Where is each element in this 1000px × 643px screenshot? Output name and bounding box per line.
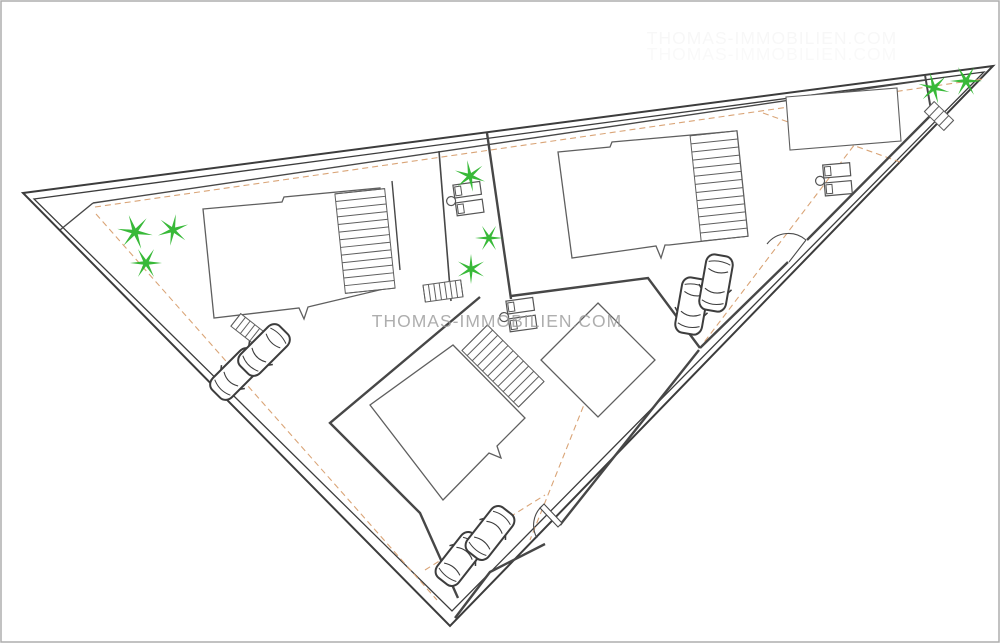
tree-icon [475, 226, 503, 250]
tree-icon [919, 73, 950, 104]
setback-lines [95, 79, 983, 600]
tree-icon [158, 214, 188, 246]
stair-hatch-band [335, 189, 395, 294]
watermark: THOMAS-IMMOBILIEN.COM [372, 311, 622, 331]
stair-hatch-band [423, 280, 463, 302]
site-plan-drawing: THOMAS-IMMOBILIEN.COM THOMAS-IMMOBILIEN.… [0, 0, 1000, 643]
buildings [203, 88, 901, 500]
watermark-text: THOMAS-IMMOBILIEN.COM [372, 311, 622, 331]
tree-icon [130, 249, 162, 277]
sunbeds-group [444, 181, 483, 217]
tree-icon [117, 215, 152, 249]
watermark-echoes: THOMAS-IMMOBILIEN.COMTHOMAS-IMMOBILIEN.C… [647, 28, 897, 64]
pool-outline [786, 88, 901, 150]
site-plan-screenshot: THOMAS-IMMOBILIEN.COM THOMAS-IMMOBILIEN.… [0, 0, 1000, 643]
parcel-divider-wall-west [487, 133, 511, 299]
gate-leaf-south [540, 504, 562, 527]
watermark-echo: THOMAS-IMMOBILIEN.COM [647, 44, 897, 64]
stair-hatch-band [924, 102, 953, 131]
sunbeds-group [814, 163, 852, 197]
terrace-edge-wall [392, 181, 400, 270]
tree-icon [458, 254, 484, 284]
left-corner-chamfer-wall [60, 203, 93, 230]
garden-strip-wall [439, 151, 451, 301]
